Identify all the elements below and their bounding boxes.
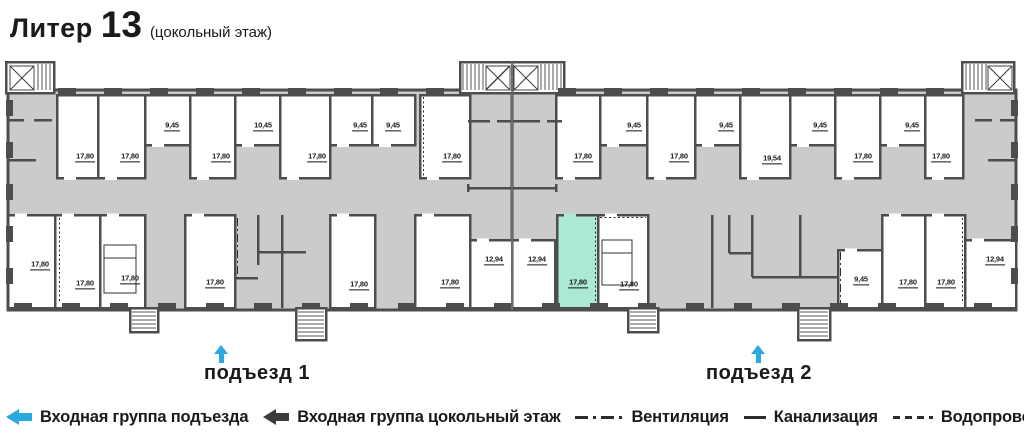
room-area-label: 9,45 <box>626 121 642 131</box>
room-area-label: 17,80 <box>669 152 689 162</box>
room-area-label: 17,80 <box>205 278 225 288</box>
room-area-label: 10,45 <box>253 121 273 131</box>
room-area-label: 9,45 <box>812 121 828 131</box>
dashed-line-icon <box>893 416 933 419</box>
room-area-label: 12,94 <box>527 255 547 265</box>
room <box>470 240 512 308</box>
room-area-label: 9,45 <box>904 121 920 131</box>
room <box>57 95 98 178</box>
legend-label: Входная группа цокольный этаж <box>297 408 560 427</box>
cyan-left-arrow-icon <box>6 409 32 425</box>
room <box>882 215 925 308</box>
room-area-label: 9,45 <box>853 275 869 285</box>
room <box>280 95 330 178</box>
legend-sewerage: Канализация <box>744 408 878 427</box>
room-area-label: 17,80 <box>442 152 462 162</box>
room <box>835 95 880 178</box>
room <box>925 215 965 308</box>
bottom-stairs <box>130 308 830 340</box>
legend-water: Водопровод <box>893 408 1024 427</box>
room-area-label: 17,80 <box>211 152 231 162</box>
floor-plan-svg <box>0 0 1024 438</box>
legend-entry-group-porch: Входная группа подъезда <box>6 408 248 427</box>
room-area-label: 17,80 <box>568 278 588 288</box>
room <box>415 215 470 308</box>
room <box>647 95 695 178</box>
room-area-label: 17,80 <box>619 280 639 290</box>
room-area-label: 17,80 <box>936 278 956 288</box>
room-area-label: 17,80 <box>853 152 873 162</box>
room-area-label: 12,94 <box>985 255 1005 265</box>
room-area-label: 9,45 <box>718 121 734 131</box>
room <box>512 240 555 308</box>
dark-left-arrow-icon <box>263 409 289 425</box>
room <box>420 95 470 178</box>
legend-entry-group-basement: Входная группа цокольный этаж <box>263 408 560 427</box>
legend-label: Входная группа подъезда <box>40 408 248 427</box>
room-area-label: 9,45 <box>164 121 180 131</box>
room-area-label: 17,80 <box>307 152 327 162</box>
room-area-label: 17,80 <box>898 278 918 288</box>
legend-ventilation: Вентиляция <box>575 408 728 427</box>
room <box>190 95 235 178</box>
legend-label: Водопровод <box>941 408 1024 427</box>
entrance-2-label: подъезд 2 <box>706 362 812 385</box>
room <box>556 95 600 178</box>
room-area-label: 9,45 <box>352 121 368 131</box>
room-area-label: 17,80 <box>120 152 140 162</box>
room <box>98 95 145 178</box>
room-area-label: 17,80 <box>440 278 460 288</box>
dashdot-line-icon <box>575 416 623 419</box>
room <box>695 95 740 145</box>
room-area-label: 17,80 <box>573 152 593 162</box>
room-selected[interactable] <box>557 215 598 308</box>
solid-line-icon <box>744 416 766 419</box>
floor-plan-page: Литер 13 (цокольный этаж) <box>0 0 1024 438</box>
room <box>185 215 235 308</box>
room-area-label: 17,80 <box>75 152 95 162</box>
room <box>925 95 963 178</box>
room-area-label: 17,80 <box>30 260 50 270</box>
entrance-1-label: подъезд 1 <box>204 362 310 385</box>
room <box>55 215 100 308</box>
room-area-label: 9,45 <box>385 121 401 131</box>
room-area-label: 19,54 <box>762 154 782 164</box>
legend-label: Вентиляция <box>631 408 728 427</box>
room <box>330 215 375 308</box>
legend: Входная группа подъезда Входная группа ц… <box>6 402 1020 432</box>
room-area-label: 17,80 <box>349 280 369 290</box>
room-area-label: 17,80 <box>931 152 951 162</box>
room-area-label: 17,80 <box>75 279 95 289</box>
legend-label: Канализация <box>774 408 878 427</box>
room <box>965 240 1016 308</box>
room-area-label: 12,94 <box>484 255 504 265</box>
room-area-label: 17,80 <box>120 274 140 284</box>
room <box>740 95 790 178</box>
